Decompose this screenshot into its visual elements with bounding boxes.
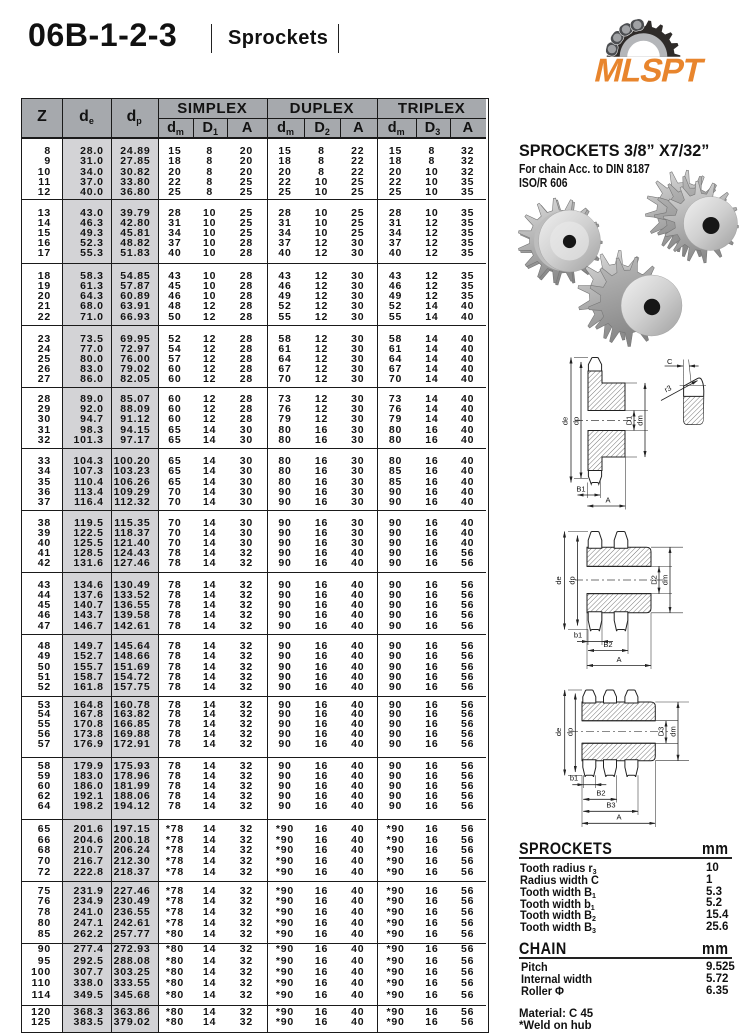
svg-text:A: A	[616, 655, 621, 664]
svg-text:C: C	[667, 357, 673, 366]
svg-text:B2: B2	[596, 789, 605, 798]
svg-text:B2: B2	[603, 640, 612, 649]
svg-text:dm: dm	[669, 726, 678, 736]
svg-text:dp: dp	[565, 728, 574, 736]
svg-text:A: A	[616, 813, 621, 822]
svg-text:D1: D1	[625, 416, 634, 426]
svg-text:r3: r3	[663, 383, 673, 394]
svg-text:b1: b1	[574, 631, 582, 640]
svg-text:D2: D2	[650, 575, 659, 585]
svg-text:dm: dm	[636, 415, 645, 425]
svg-text:D3: D3	[657, 727, 666, 737]
svg-text:A: A	[605, 496, 610, 505]
svg-text:de: de	[554, 728, 563, 736]
svg-text:b1: b1	[570, 774, 578, 783]
svg-text:de: de	[554, 576, 563, 584]
svg-text:dm: dm	[661, 575, 670, 585]
svg-text:dp: dp	[572, 417, 581, 425]
svg-text:de: de	[561, 417, 570, 425]
svg-text:dp: dp	[568, 576, 577, 584]
svg-text:B1: B1	[576, 485, 585, 494]
svg-text:B3: B3	[606, 801, 615, 810]
svg-text:MLSPT: MLSPT	[591, 53, 708, 87]
